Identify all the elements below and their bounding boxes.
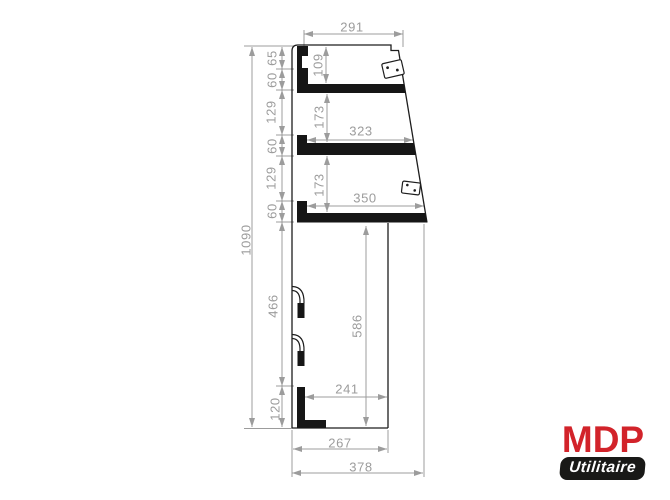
dim-bottom-inner-width: 241 — [335, 383, 359, 396]
wall-hooks — [293, 287, 305, 367]
dim-chain-seg-3: 129 — [265, 100, 278, 124]
shelf-1-lip-slot — [302, 56, 308, 68]
dim-shelf2-width: 323 — [349, 125, 373, 138]
hook-2-tip — [298, 351, 305, 366]
hook-2-inner-curve — [293, 339, 301, 352]
brand-product-line-badge: Utilitaire — [559, 457, 646, 480]
dim-chain-seg-1: 65 — [266, 50, 279, 66]
dim-chain-seg-2: 60 — [266, 72, 279, 88]
dim-bottom-width: 267 — [328, 437, 352, 450]
hook-1-inner-curve — [293, 291, 301, 304]
dim-overall-height: 1090 — [240, 224, 253, 255]
base-foot — [297, 420, 326, 428]
dim-top-width: 291 — [340, 21, 364, 34]
dim-chain-seg-4: 60 — [266, 138, 279, 154]
mounting-bracket-mid — [401, 181, 420, 195]
dim-chain-seg-5: 129 — [265, 166, 278, 190]
dim-chain-seg-6: 60 — [266, 203, 279, 219]
dim-shelf-gap-lower: 173 — [313, 173, 326, 197]
dim-overall-depth: 378 — [349, 461, 373, 474]
dim-chain-seg-7: 466 — [267, 294, 280, 318]
dim-lower-height: 586 — [351, 314, 364, 338]
brand-name: MDP — [557, 424, 649, 455]
cabinet-outline — [292, 45, 427, 428]
dim-shelf-gap-upper: 173 — [313, 105, 326, 129]
dim-chain-seg-8: 120 — [269, 397, 282, 421]
left-wall — [292, 45, 302, 428]
shelf-2 — [297, 143, 416, 155]
brand-logo: MDP Utilitaire — [557, 424, 649, 480]
shelf-3 — [297, 213, 427, 223]
dim-shelf3-width: 350 — [353, 192, 377, 205]
dim-top-shelf-depth: 109 — [312, 53, 325, 77]
hook-1-tip — [298, 303, 305, 318]
drawing-canvas: 291 1090 65 60 129 60 129 60 466 120 109… — [0, 0, 670, 500]
brand-product-line-label: Utilitaire — [569, 459, 638, 477]
mounting-bracket-top — [382, 59, 405, 78]
shelf-1 — [297, 84, 406, 93]
